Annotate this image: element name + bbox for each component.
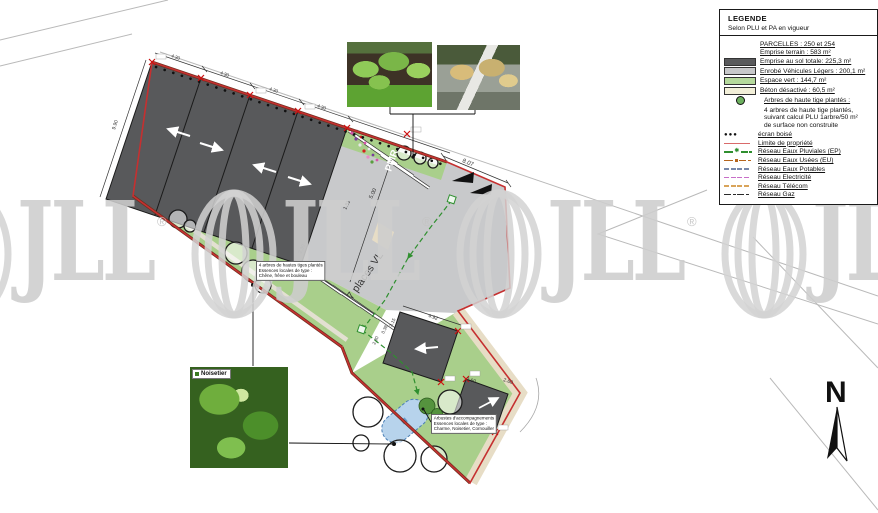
legend-item-label: Réseau Eaux Potables [758,166,825,173]
legend-item-label: PARCELLES : 250 et 254 [760,41,835,48]
legend-item-label: écran boisé [758,131,792,138]
electricite-line-icon [724,174,754,181]
legend-item-label: Limite de propriété [758,140,813,147]
photo-caption-chip: Noisetier [192,369,231,379]
legend-item-label: Enrobé Véhicules Légers : 200,1 m² [760,68,865,75]
shrubs-annotation: Arbustes d'accompagnements Essences loca… [431,414,497,434]
legend-item-label: Emprise terrain : 583 m² [760,49,831,56]
note-line: Charme, Noisetier, Cornouiller [434,427,494,432]
roadside-grasses-photo [437,45,520,110]
ep-line-icon: ✱ [724,148,754,155]
legend-item-label: Réseau Gaz [758,191,795,198]
legend-item-label: Béton désactivé : 60,5 m² [760,87,835,94]
leaf-swatch-icon [195,372,199,376]
potable-line-icon [724,166,754,173]
eu-line-icon [724,157,754,164]
legend-title: LEGENDE [728,14,871,23]
legend-swatch [724,58,756,66]
legend-swatch [724,77,756,85]
legend-item-label: Réseau Télécom [758,183,808,190]
boundary-line-icon [724,140,754,147]
legend-item-label: Espace vert : 144,7 m² [760,77,826,84]
legend-item-label: Emprise au sol totale: 225,3 m² [760,58,851,65]
legend-swatch [724,67,756,75]
svg-text:9.90: 9.90 [111,119,120,130]
trees-annotation: 4 arbres de hautes tiges plantés Essence… [256,261,325,281]
svg-text:8.07: 8.07 [461,158,475,168]
photo-caption: Noisetier [201,370,227,378]
gaz-line-icon [724,191,754,198]
legend-items: PARCELLES : 250 et 254 Emprise terrain :… [720,36,877,204]
site-plan-page: PMR 7 places VL 8.07 5.00 1.81 2.30 9.90… [0,0,878,513]
legend-box: LEGENDE Selon PLU et PA en vigueur PARCE… [719,9,878,205]
legend-item-label: Arbres de haute tige plantés : [764,97,850,104]
grass-planting-photo [347,42,432,107]
telecom-line-icon [724,183,754,190]
legend-header: LEGENDE Selon PLU et PA en vigueur [720,10,877,36]
svg-text:2.30: 2.30 [371,335,379,346]
tree-symbol-icon [736,96,745,105]
legend-subtitle: Selon PLU et PA en vigueur [728,25,871,32]
legend-item-label: Réseau Eaux Usées (EU) [758,157,834,164]
legend-item-sublines: 4 arbres de haute tige plantés, suivant … [724,107,874,130]
svg-text:4.30: 4.30 [269,86,280,94]
legend-item-label: Réseau Eaux Pluviales (EP) [758,148,841,155]
legend-item-label: Réseau Electricité [758,174,811,181]
note-line: Chêne, frêne et bouleau [259,274,323,279]
noisetier-photo: Noisetier [190,367,288,468]
main-building [106,62,347,265]
legend-swatch [724,87,756,95]
ecran-boise-icon: ●●● [724,132,754,138]
north-arrow: N [825,376,847,461]
svg-text:4.92: 4.92 [427,313,438,322]
north-label: N [825,376,847,409]
